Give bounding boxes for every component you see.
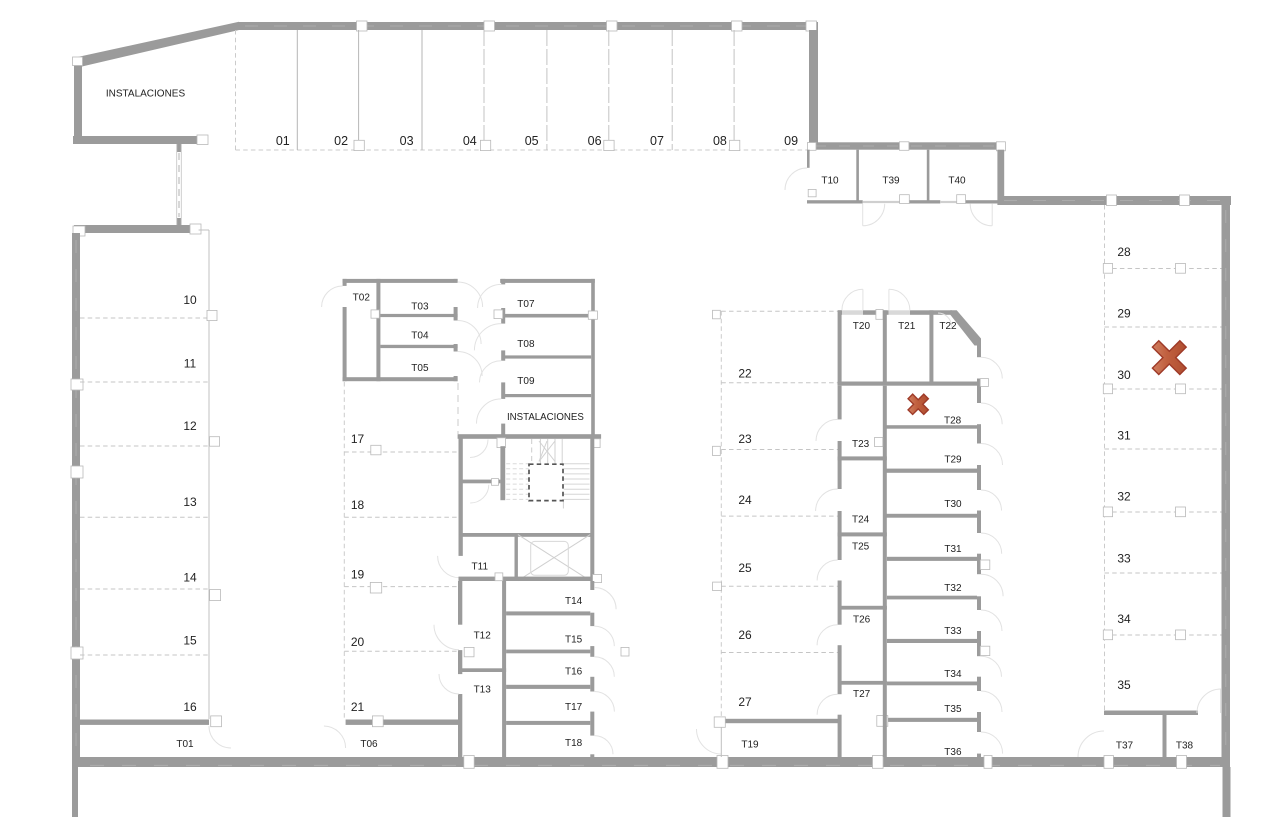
svg-text:T36: T36 <box>944 747 962 758</box>
svg-text:T29: T29 <box>944 455 962 466</box>
svg-text:T32: T32 <box>944 583 962 594</box>
svg-text:T15: T15 <box>565 635 583 646</box>
svg-text:20: 20 <box>351 635 365 649</box>
svg-text:29: 29 <box>1117 306 1131 320</box>
svg-text:T08: T08 <box>517 339 535 350</box>
svg-text:T39: T39 <box>882 176 900 187</box>
svg-text:23: 23 <box>738 432 752 446</box>
svg-text:T05: T05 <box>411 363 429 374</box>
svg-text:T40: T40 <box>948 176 966 187</box>
svg-text:14: 14 <box>183 570 197 584</box>
svg-text:INSTALACIONES: INSTALACIONES <box>106 89 186 100</box>
svg-text:13: 13 <box>183 495 197 509</box>
svg-text:05: 05 <box>525 134 539 148</box>
svg-text:T10: T10 <box>821 176 839 187</box>
svg-text:T03: T03 <box>411 302 429 313</box>
svg-text:T37: T37 <box>1116 741 1134 752</box>
svg-text:17: 17 <box>351 432 365 446</box>
svg-text:24: 24 <box>738 493 752 507</box>
svg-text:02: 02 <box>334 134 348 148</box>
svg-text:T09: T09 <box>517 376 535 387</box>
svg-text:T14: T14 <box>565 596 583 607</box>
svg-text:T31: T31 <box>944 544 962 555</box>
svg-text:32: 32 <box>1117 489 1131 503</box>
svg-text:T07: T07 <box>517 299 535 310</box>
svg-text:T11: T11 <box>472 562 489 573</box>
svg-text:INSTALACIONES: INSTALACIONES <box>507 412 584 423</box>
svg-text:27: 27 <box>738 695 752 709</box>
svg-text:T16: T16 <box>565 667 583 678</box>
svg-text:21: 21 <box>351 700 365 714</box>
svg-text:10: 10 <box>183 293 197 307</box>
svg-text:01: 01 <box>276 134 290 148</box>
svg-text:T30: T30 <box>944 499 962 510</box>
svg-text:26: 26 <box>738 628 752 642</box>
svg-text:03: 03 <box>400 134 414 148</box>
svg-text:19: 19 <box>351 567 365 581</box>
svg-text:25: 25 <box>738 561 752 575</box>
svg-text:16: 16 <box>183 700 197 714</box>
svg-text:T18: T18 <box>565 738 583 749</box>
svg-text:T21: T21 <box>898 321 916 332</box>
svg-text:08: 08 <box>713 134 727 148</box>
svg-text:T04: T04 <box>411 330 429 341</box>
svg-text:22: 22 <box>738 366 752 380</box>
svg-text:T34: T34 <box>944 669 962 680</box>
svg-text:T26: T26 <box>853 614 871 625</box>
svg-text:T20: T20 <box>853 321 871 332</box>
svg-text:T13: T13 <box>474 685 492 696</box>
svg-text:T17: T17 <box>565 702 583 713</box>
svg-text:T28: T28 <box>944 415 962 426</box>
svg-text:06: 06 <box>588 134 602 148</box>
svg-text:30: 30 <box>1117 368 1131 382</box>
svg-text:T38: T38 <box>1176 741 1194 752</box>
svg-text:T06: T06 <box>360 739 378 750</box>
svg-text:35: 35 <box>1117 678 1131 692</box>
svg-text:07: 07 <box>650 134 664 148</box>
svg-text:T27: T27 <box>853 689 871 700</box>
svg-text:T25: T25 <box>852 542 870 553</box>
svg-text:T02: T02 <box>353 293 371 304</box>
svg-text:11: 11 <box>184 356 197 370</box>
svg-text:15: 15 <box>183 633 197 647</box>
svg-text:T19: T19 <box>741 740 759 751</box>
svg-text:31: 31 <box>1117 429 1131 443</box>
svg-text:04: 04 <box>463 134 477 148</box>
svg-text:T33: T33 <box>944 626 962 637</box>
svg-text:34: 34 <box>1117 612 1131 626</box>
svg-text:18: 18 <box>351 498 365 512</box>
svg-text:T01: T01 <box>176 739 194 750</box>
svg-text:12: 12 <box>183 419 197 433</box>
svg-text:T23: T23 <box>852 439 870 450</box>
svg-text:T22: T22 <box>939 321 957 332</box>
svg-text:T35: T35 <box>944 704 962 715</box>
svg-text:T24: T24 <box>852 514 870 525</box>
svg-text:33: 33 <box>1117 552 1131 566</box>
svg-text:09: 09 <box>784 134 798 148</box>
svg-text:28: 28 <box>1117 245 1131 259</box>
svg-text:T12: T12 <box>474 631 492 642</box>
